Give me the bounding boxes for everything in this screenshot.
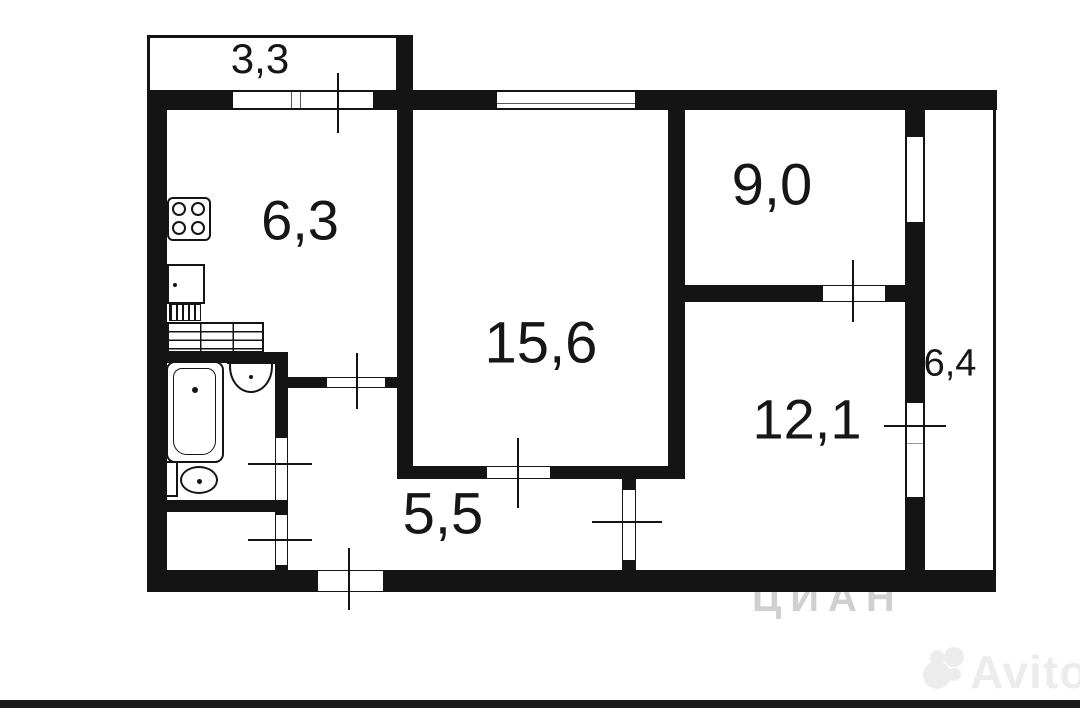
wall-top-c [635, 90, 683, 110]
window-9-loggia [905, 137, 925, 222]
room-label-hallway: 5,5 [403, 481, 484, 548]
avito-logo-icon [930, 650, 945, 665]
hall-12-door-opening [622, 490, 636, 560]
room-label-room-9: 9,0 [732, 152, 813, 219]
room-label-balcony: 3,3 [231, 35, 289, 83]
kitchen-door-tick [356, 353, 358, 409]
avito-logo-icon [948, 668, 961, 681]
entrance-door-tick [348, 548, 350, 610]
wall-loggia-inner-b [905, 222, 925, 403]
room-label-room-12: 12,1 [753, 387, 862, 452]
kitchen-counter-icon [167, 322, 264, 353]
door-9-12-opening [823, 285, 885, 302]
wall-bath-right [275, 352, 288, 438]
avito-logo-icon [923, 661, 951, 689]
avito-watermark-text: Avito [970, 645, 1080, 699]
wall-hall-partition-b [622, 560, 636, 572]
room-label-loggia: 6,4 [924, 343, 977, 386]
wall-9-12-a [685, 285, 823, 302]
wall-left-outer [147, 90, 167, 592]
bathtub-icon [166, 361, 224, 463]
kitchen-sink-cabinet-icon [167, 264, 205, 304]
wall-living-bottom-a [397, 466, 487, 479]
wall-balcony-right [396, 37, 413, 93]
wall-closet-a [275, 500, 288, 515]
wall-bottom-a [147, 570, 318, 592]
toilet-bowl-icon [180, 466, 218, 494]
radiator-icon [169, 304, 201, 321]
wall-closet-b [275, 565, 288, 572]
bath-door-tick [248, 463, 312, 465]
window-12-loggia [905, 403, 925, 497]
living-door-tick [517, 438, 519, 508]
window-12-loggia-tick [884, 425, 946, 427]
wall-living-right [668, 110, 685, 478]
hall-12-door-tick [592, 521, 662, 523]
wall-balcony-left [147, 35, 150, 93]
door-9-12-tick [852, 260, 854, 322]
room-loggia [925, 110, 993, 572]
wall-bath-bottom [167, 500, 288, 512]
wall-top-right [683, 90, 997, 110]
window-kitchen-balcony [233, 90, 373, 110]
wall-top-b [373, 90, 497, 110]
wall-loggia-inner-c [905, 497, 925, 572]
wall-9-12-b [885, 285, 905, 302]
toilet-cistern-icon [165, 461, 178, 497]
room-label-living-room: 15,6 [485, 310, 598, 377]
closet-door-tick [248, 539, 312, 541]
window-living-room [497, 90, 635, 110]
wall-hall-partition-a [622, 478, 636, 490]
bath-door-opening [275, 438, 288, 500]
wall-living-left [397, 110, 413, 478]
room-label-kitchen: 6,3 [261, 188, 339, 253]
washbasin-icon [227, 360, 275, 396]
wall-kitchen-bottom-b [385, 377, 397, 388]
wall-bottom-b [383, 570, 996, 592]
wall-loggia-inner-a [905, 110, 925, 137]
balcony-door-tick [337, 73, 339, 133]
entrance-door-opening [318, 570, 383, 592]
wall-loggia-outer [993, 110, 996, 572]
avito-logo-icon [944, 647, 964, 667]
stove-icon [167, 197, 211, 241]
bottom-bar [0, 700, 1080, 708]
floor-plan-image: ЦИАН [0, 0, 1080, 708]
wall-living-bottom-b [550, 466, 685, 479]
